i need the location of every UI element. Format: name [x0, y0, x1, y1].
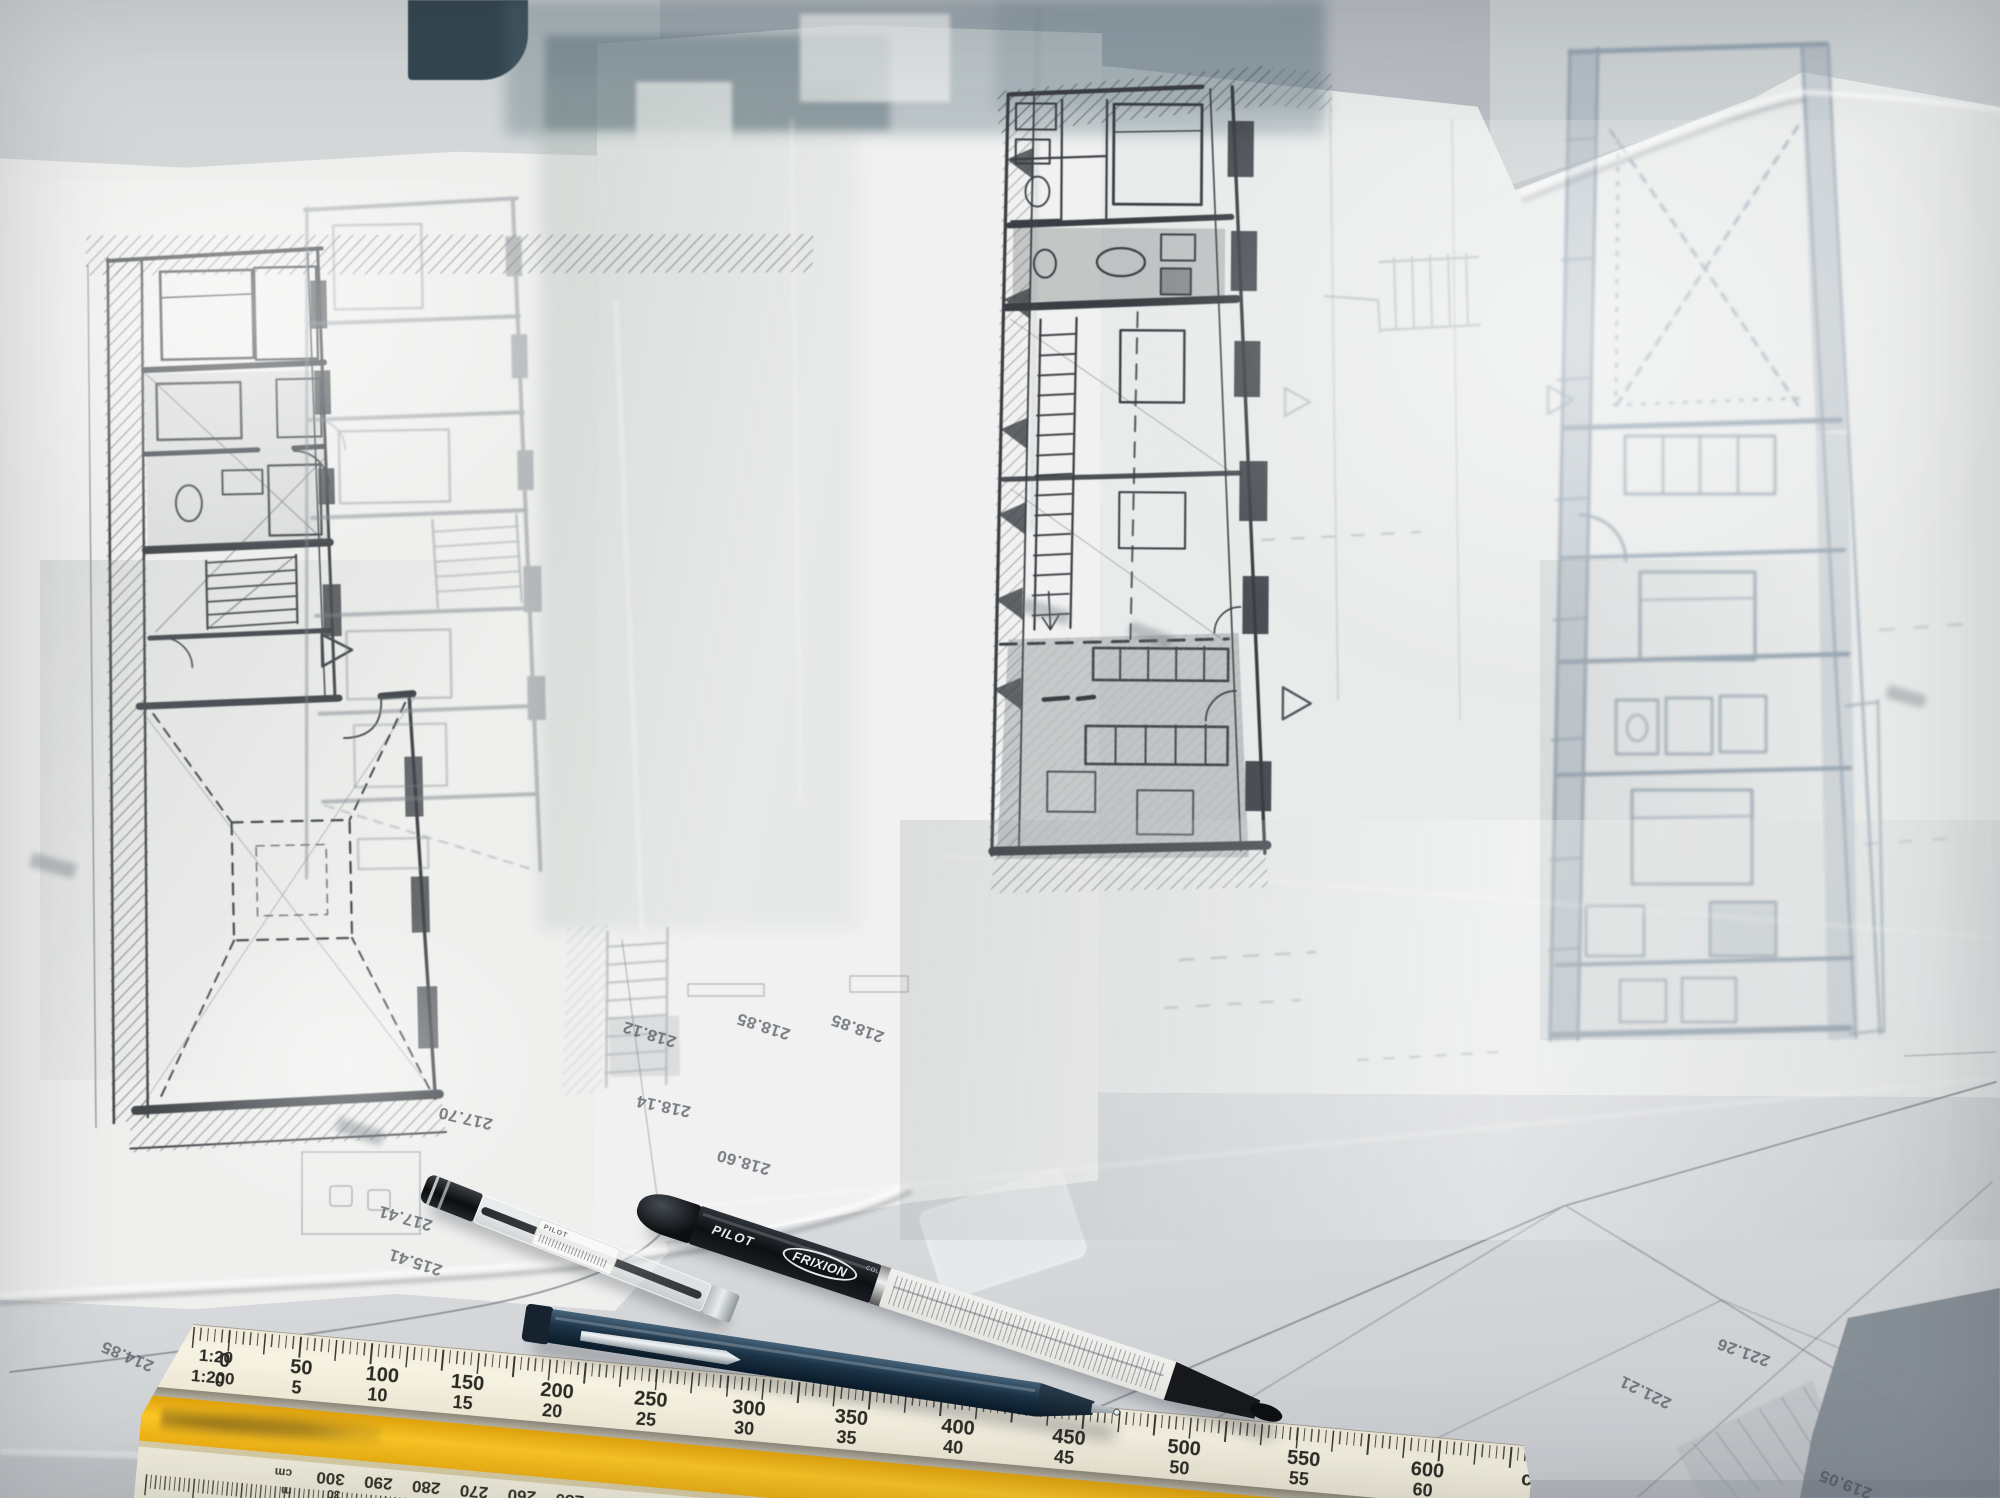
ruler-m-number: 40: [942, 1436, 964, 1459]
survey-elevation-number: 221.21: [1616, 1371, 1674, 1413]
survey-elevation-number: 218.85: [828, 1009, 887, 1047]
survey-elevation-number: 214.85: [98, 1336, 156, 1376]
survey-elevation-number: 217.41: [376, 1201, 434, 1235]
ruler-m-number: 0: [214, 1370, 226, 1392]
photo-architectural-sketches: 218.12218.85218.85218.14217.70218.60217.…: [0, 0, 2000, 1498]
ruler-m-number: 50: [1168, 1457, 1190, 1480]
ruler-reverse-number: 270: [459, 1480, 489, 1498]
survey-elevation-number: 217.70: [436, 1102, 494, 1134]
ruler-m-number: 30: [733, 1417, 755, 1440]
ruler-reverse-number: 260: [507, 1484, 537, 1498]
ruler-m-number: 45: [1053, 1447, 1075, 1470]
survey-elevation-number: 218.85: [734, 1008, 792, 1044]
ruler-m-number: 35: [836, 1427, 858, 1450]
ruler-m-number: 60: [1412, 1479, 1434, 1498]
navy-pen-metal-tip: [1091, 1402, 1117, 1417]
ruler-m-number: 15: [452, 1392, 474, 1415]
survey-elevation-number: 218.60: [714, 1145, 772, 1179]
ruler-reverse-unit-m: m: [280, 1484, 292, 1498]
ruler-m-number: 10: [366, 1384, 388, 1407]
ruler-m-number: 55: [1288, 1468, 1310, 1491]
navy-pen-ball: [1113, 1408, 1121, 1416]
ruler-reverse-number: 240: [602, 1493, 632, 1498]
ruler-reverse-number: 250: [555, 1489, 585, 1498]
ruler-reverse-unit-cm: cm: [274, 1465, 293, 1481]
ruler-m-number: 20: [541, 1400, 563, 1423]
ruler-m-number: 5: [290, 1377, 302, 1399]
survey-elevation-number: 218.12: [620, 1016, 678, 1051]
ruler-m-number: 25: [635, 1408, 657, 1431]
survey-elevation-numbers: 218.12218.85218.85218.14217.70218.60217.…: [0, 0, 2000, 1498]
survey-elevation-number: 221.26: [1714, 1333, 1773, 1371]
survey-elevation-number: 218.14: [635, 1091, 693, 1122]
survey-elevation-number: 215.41: [386, 1244, 444, 1280]
survey-elevation-number: 219.05: [1816, 1465, 1875, 1498]
frixion-pen-tip-end: [1247, 1400, 1284, 1426]
